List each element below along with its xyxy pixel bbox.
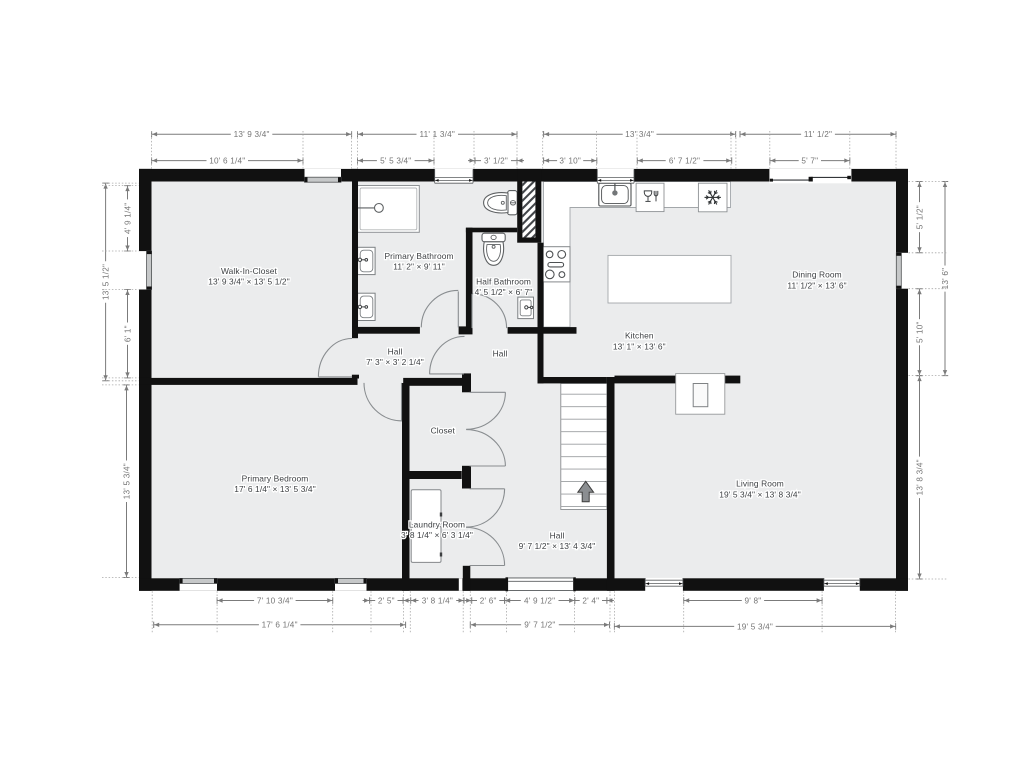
svg-text:9' 7 1/2" × 13' 4 3/4": 9' 7 1/2" × 13' 4 3/4" <box>519 541 596 551</box>
svg-text:Hall: Hall <box>550 530 565 540</box>
svg-text:Kitchen: Kitchen <box>625 331 654 341</box>
svg-text:3' 8 1/4" × 6' 3 1/4": 3' 8 1/4" × 6' 3 1/4" <box>401 530 473 540</box>
svg-text:13' 9 3/4" × 13' 5 1/2": 13' 9 3/4" × 13' 5 1/2" <box>208 277 290 287</box>
svg-text:11' 2" × 9' 11": 11' 2" × 9' 11" <box>393 262 445 272</box>
svg-text:6' 7 1/2": 6' 7 1/2" <box>669 157 700 166</box>
svg-text:13' 5 1/2": 13' 5 1/2" <box>101 264 110 300</box>
svg-text:13' 5 3/4": 13' 5 3/4" <box>122 463 131 499</box>
svg-text:5' 1/2": 5' 1/2" <box>915 205 924 229</box>
svg-text:Living Room: Living Room <box>736 479 784 489</box>
svg-text:11' 1 3/4": 11' 1 3/4" <box>420 130 455 139</box>
svg-text:7' 3" × 3' 2 1/4": 7' 3" × 3' 2 1/4" <box>366 357 424 367</box>
svg-text:4' 9 1/2": 4' 9 1/2" <box>524 596 555 605</box>
svg-text:2' 4": 2' 4" <box>582 596 599 605</box>
svg-text:3' 1/2": 3' 1/2" <box>484 157 508 166</box>
svg-text:13' 9 3/4": 13' 9 3/4" <box>234 130 270 139</box>
svg-text:Laundry Room: Laundry Room <box>409 520 465 530</box>
svg-text:Hall: Hall <box>493 348 508 358</box>
svg-text:Primary Bedroom: Primary Bedroom <box>242 473 309 483</box>
svg-text:5' 10": 5' 10" <box>915 321 924 343</box>
svg-text:2' 5": 2' 5" <box>378 596 395 605</box>
svg-text:Hall: Hall <box>388 346 403 356</box>
svg-text:13' 6": 13' 6" <box>941 268 950 290</box>
svg-text:2' 6": 2' 6" <box>480 596 497 605</box>
svg-text:6' 1": 6' 1" <box>123 325 132 342</box>
svg-text:3' 10": 3' 10" <box>559 157 581 166</box>
svg-text:17' 6 1/4" × 13' 5 3/4": 17' 6 1/4" × 13' 5 3/4" <box>234 484 316 494</box>
svg-text:9' 8": 9' 8" <box>744 596 761 605</box>
svg-text:5' 7": 5' 7" <box>801 157 818 166</box>
svg-text:17' 6 1/4": 17' 6 1/4" <box>262 621 298 630</box>
svg-text:13' 8 3/4": 13' 8 3/4" <box>915 459 924 495</box>
svg-text:19' 5 3/4": 19' 5 3/4" <box>737 622 773 631</box>
svg-text:5' 5 3/4": 5' 5 3/4" <box>380 157 411 166</box>
svg-text:Half Bathroom: Half Bathroom <box>476 277 531 287</box>
svg-text:Primary Bathroom: Primary Bathroom <box>384 251 453 261</box>
svg-text:13' 1" × 13' 6": 13' 1" × 13' 6" <box>613 341 666 351</box>
svg-text:Dining Room: Dining Room <box>792 270 842 280</box>
svg-text:4' 9 1/4": 4' 9 1/4" <box>123 203 132 234</box>
svg-text:Closet: Closet <box>431 425 456 435</box>
svg-text:9' 7 1/2": 9' 7 1/2" <box>524 621 555 630</box>
svg-text:19' 5 3/4" × 13' 8 3/4": 19' 5 3/4" × 13' 8 3/4" <box>719 489 801 499</box>
svg-text:13' 3/4": 13' 3/4" <box>625 130 654 139</box>
svg-text:7' 10 3/4": 7' 10 3/4" <box>257 596 293 605</box>
svg-text:Walk-In-Closet: Walk-In-Closet <box>221 266 278 276</box>
svg-text:10' 6 1/4": 10' 6 1/4" <box>209 157 245 166</box>
svg-text:11' 1/2" × 13' 6": 11' 1/2" × 13' 6" <box>787 280 846 290</box>
svg-text:4' 5 1/2" × 6' 7": 4' 5 1/2" × 6' 7" <box>475 287 533 297</box>
svg-text:3' 8 1/4": 3' 8 1/4" <box>422 596 453 605</box>
svg-text:11' 1/2": 11' 1/2" <box>804 130 832 139</box>
